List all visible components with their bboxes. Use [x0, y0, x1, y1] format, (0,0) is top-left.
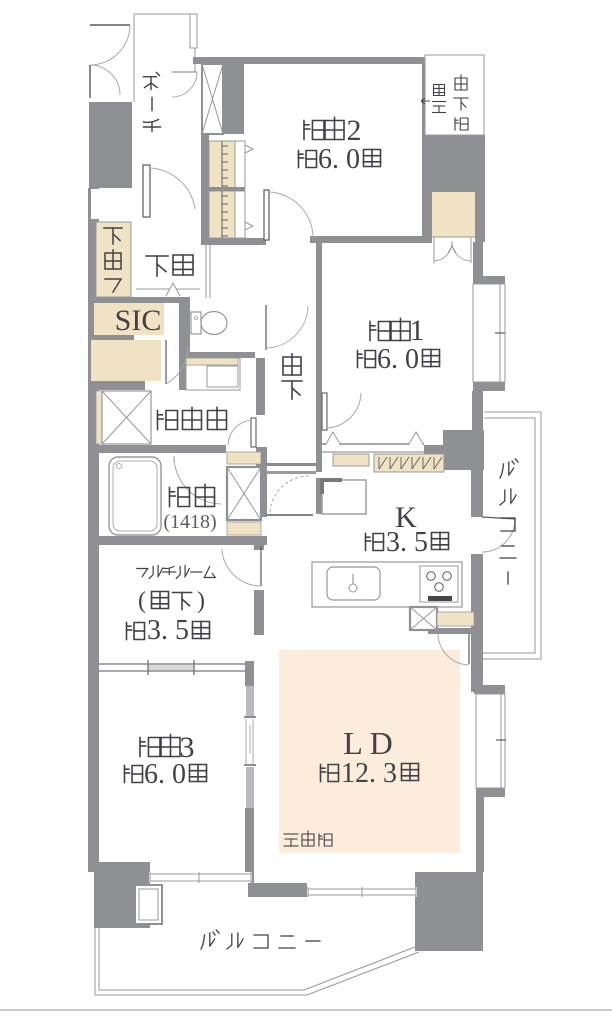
svg-text:3. 5: 3. 5 — [386, 527, 428, 558]
svg-text:2: 2 — [347, 114, 362, 147]
svg-text:6. 0: 6. 0 — [318, 144, 360, 175]
svg-text:1: 1 — [410, 314, 425, 347]
svg-text:3. 5: 3. 5 — [147, 615, 189, 646]
svg-text:(: ( — [138, 588, 146, 614]
svg-text:6. 0: 6. 0 — [144, 759, 186, 790]
svg-text:12. 3: 12. 3 — [341, 758, 397, 789]
svg-text:L D: L D — [343, 725, 392, 761]
svg-text:SIC: SIC — [115, 304, 162, 337]
svg-text:6. 0: 6. 0 — [377, 344, 419, 375]
svg-text:): ) — [197, 588, 205, 614]
svg-text:(1418): (1418) — [163, 511, 216, 533]
